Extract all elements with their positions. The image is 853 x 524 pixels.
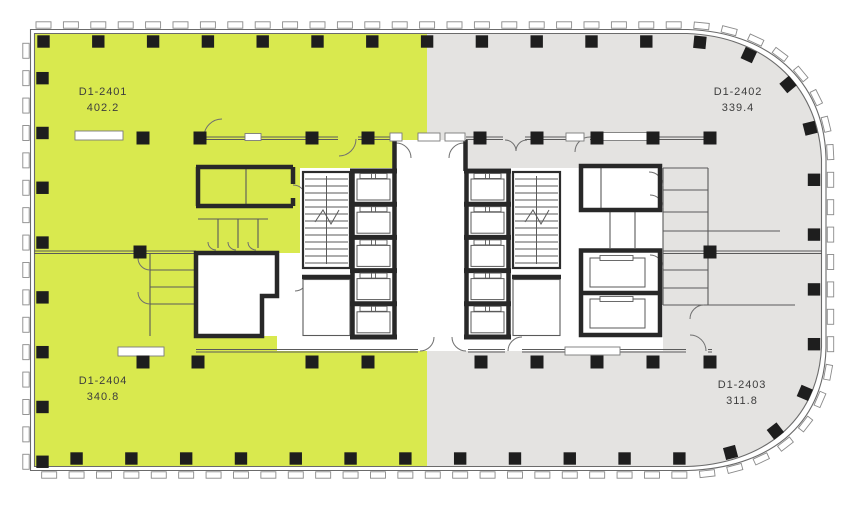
window-mullion — [590, 472, 605, 478]
window-mullion — [453, 472, 468, 478]
window-mullion — [447, 22, 462, 28]
window-mullion — [480, 472, 495, 478]
window-mullion — [529, 22, 544, 28]
column-marker — [125, 452, 137, 464]
window-mullion — [23, 125, 29, 140]
column-marker — [808, 283, 820, 295]
window-mullion — [96, 472, 111, 478]
column-marker — [454, 452, 466, 464]
column-marker — [531, 356, 544, 369]
staircase — [302, 172, 351, 336]
window-mullion — [310, 22, 325, 28]
window-mullion — [507, 472, 522, 478]
window-mullion — [233, 472, 248, 478]
column-marker — [36, 291, 48, 303]
column-marker — [311, 35, 323, 47]
unit-area: 402.2 — [68, 100, 138, 116]
window-mullion — [337, 22, 352, 28]
column-marker — [290, 452, 302, 464]
window-mullion — [63, 22, 78, 28]
window-mullion — [261, 472, 276, 478]
column-marker — [36, 236, 48, 248]
column-marker — [531, 35, 543, 47]
window-mullion — [398, 472, 413, 478]
window-mullion — [23, 372, 29, 387]
column-marker — [70, 452, 82, 464]
unit-label-d1-2401: D1-2401 402.2 — [68, 84, 138, 116]
window-mullion — [474, 22, 489, 28]
column-marker — [366, 35, 378, 47]
column-marker — [693, 36, 707, 50]
window-mullion — [644, 472, 659, 478]
column-marker — [362, 356, 375, 369]
window-mullion — [778, 437, 794, 451]
column-marker — [137, 356, 150, 369]
staircase — [512, 172, 561, 336]
window-mullion — [179, 472, 194, 478]
window-mullion — [124, 472, 139, 478]
window-mullion — [611, 22, 626, 28]
window-mullion — [699, 470, 715, 478]
unit-id: D1-2401 — [68, 84, 138, 100]
column-marker — [37, 35, 49, 47]
column-marker — [36, 182, 48, 194]
column-marker — [591, 356, 604, 369]
window-mullion — [23, 290, 29, 305]
column-marker — [134, 246, 147, 259]
column-marker — [36, 72, 48, 84]
window-mullion — [316, 472, 331, 478]
column-marker — [808, 174, 820, 186]
window-mullion — [23, 454, 29, 469]
window-mullion — [827, 309, 833, 324]
floor-plan-canvas — [0, 0, 853, 524]
column-marker — [808, 228, 820, 240]
window-mullion — [814, 391, 826, 407]
elevator-bank — [464, 169, 511, 339]
window-mullion — [23, 345, 29, 360]
window-mullion — [173, 22, 188, 28]
window-mullion — [666, 22, 681, 28]
unit-area: 311.8 — [707, 393, 777, 409]
column-marker — [704, 246, 717, 259]
column-marker — [137, 132, 150, 145]
window-mullion — [392, 22, 407, 28]
column-marker — [421, 35, 433, 47]
window-mullion — [42, 472, 57, 478]
window-mullion — [23, 153, 29, 168]
column-marker — [36, 456, 48, 468]
window-mullion — [827, 227, 833, 242]
column-marker — [36, 346, 48, 358]
window-mullion — [827, 200, 833, 215]
column-marker — [618, 452, 630, 464]
column-marker — [673, 452, 685, 464]
window-mullion — [827, 254, 833, 269]
unit-id: D1-2403 — [707, 377, 777, 393]
column-marker — [564, 452, 576, 464]
window-mullion — [639, 22, 654, 28]
column-marker — [202, 35, 214, 47]
column-marker — [257, 35, 269, 47]
column-marker — [476, 35, 488, 47]
column-marker — [92, 35, 104, 47]
column-marker — [399, 452, 411, 464]
window-mullion — [827, 144, 834, 159]
column-marker — [808, 338, 820, 350]
column-marker — [180, 452, 192, 464]
column-marker — [647, 356, 660, 369]
window-mullion — [23, 427, 29, 442]
column-marker — [194, 132, 207, 145]
window-mullion — [200, 22, 215, 28]
window-mullion — [151, 472, 166, 478]
window-mullion — [23, 317, 29, 332]
window-mullion — [146, 22, 161, 28]
window-mullion — [753, 453, 769, 465]
window-mullion — [672, 472, 687, 478]
window-mullion — [562, 472, 577, 478]
window-mullion — [23, 399, 29, 414]
window-mullion — [255, 22, 270, 28]
window-mullion — [36, 22, 51, 28]
window-mullion — [228, 22, 243, 28]
window-mullion — [69, 472, 84, 478]
window-mullion — [420, 22, 435, 28]
window-mullion — [23, 71, 29, 86]
unit-label-d1-2402: D1-2402 339.4 — [703, 84, 773, 116]
column-marker — [36, 127, 48, 139]
window-mullion — [23, 180, 29, 195]
window-mullion — [557, 22, 572, 28]
window-mullion — [91, 22, 106, 28]
window-mullion — [23, 43, 29, 58]
column-marker — [235, 452, 247, 464]
window-mullion — [827, 337, 833, 352]
window-mullion — [425, 472, 440, 478]
window-mullion — [23, 235, 29, 250]
window-mullion — [584, 22, 599, 28]
window-mullion — [23, 98, 29, 113]
window-mullion — [343, 472, 358, 478]
column-marker — [591, 132, 604, 145]
window-mullion — [793, 66, 808, 82]
column-marker — [147, 35, 159, 47]
unit-label-d1-2403: D1-2403 311.8 — [707, 377, 777, 409]
column-marker — [474, 132, 487, 145]
window-mullion — [23, 208, 29, 223]
window-mullion — [206, 472, 221, 478]
window-mullion — [23, 262, 29, 277]
column-marker — [509, 452, 521, 464]
column-marker — [640, 35, 652, 47]
column-marker — [704, 132, 717, 145]
column-marker — [531, 132, 544, 145]
window-mullion — [370, 472, 385, 478]
column-marker — [306, 132, 319, 145]
window-mullion — [502, 22, 517, 28]
window-mullion — [827, 172, 833, 187]
unit-area: 339.4 — [703, 100, 773, 116]
unit-label-d1-2404: D1-2404 340.8 — [68, 373, 138, 405]
column-marker — [344, 452, 356, 464]
column-marker — [475, 356, 488, 369]
elevator-bank — [350, 169, 397, 339]
unit-area: 340.8 — [68, 389, 138, 405]
column-marker — [647, 132, 660, 145]
window-mullion — [118, 22, 133, 28]
column-marker — [704, 356, 717, 369]
floor-plan-viewport: D1-2401 402.2 D1-2402 339.4 D1-2403 311.… — [0, 0, 853, 524]
window-mullion — [827, 282, 833, 297]
window-mullion — [772, 47, 788, 61]
column-marker — [362, 132, 375, 145]
column-marker — [36, 401, 48, 413]
window-mullion — [617, 472, 632, 478]
window-mullion — [365, 22, 380, 28]
unit-id: D1-2402 — [703, 84, 773, 100]
window-mullion — [283, 22, 298, 28]
column-marker — [585, 35, 597, 47]
window-mullion — [535, 472, 550, 478]
column-marker — [192, 356, 205, 369]
window-mullion — [694, 22, 710, 30]
column-marker — [306, 356, 319, 369]
unit-id: D1-2404 — [68, 373, 138, 389]
window-mullion — [288, 472, 303, 478]
